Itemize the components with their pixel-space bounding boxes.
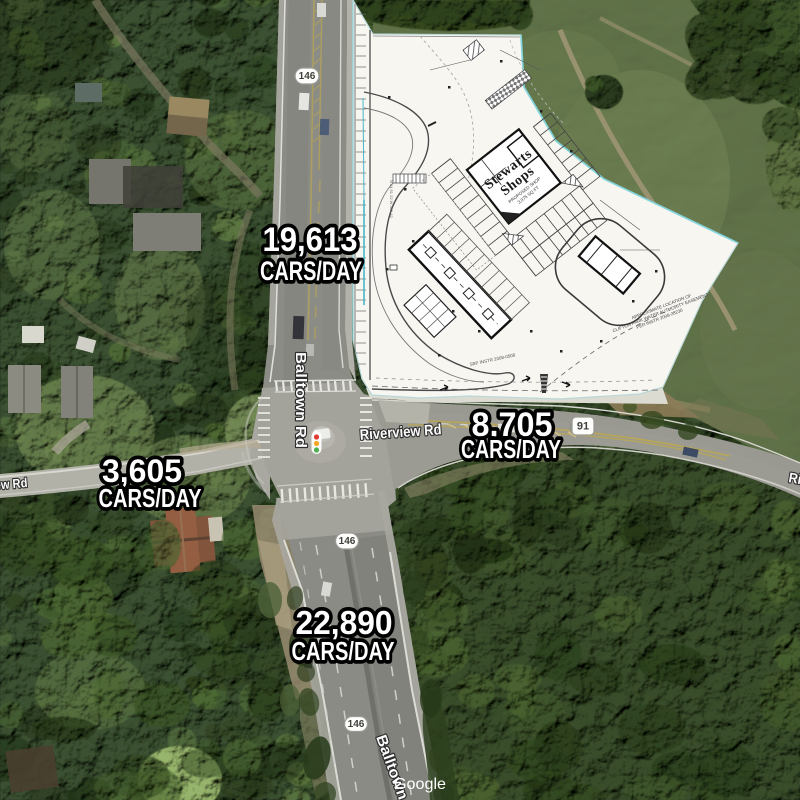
svg-text:Balltown Rd: Balltown Rd bbox=[292, 352, 309, 448]
svg-text:CARS/DAY: CARS/DAY bbox=[260, 256, 362, 286]
svg-text:CARS/DAY: CARS/DAY bbox=[292, 636, 395, 666]
svg-text:146: 146 bbox=[348, 719, 365, 730]
svg-text:Google: Google bbox=[394, 776, 446, 793]
svg-text:CARS/DAY: CARS/DAY bbox=[99, 483, 202, 513]
svg-text:CARS/DAY: CARS/DAY bbox=[461, 434, 561, 464]
svg-text:146: 146 bbox=[299, 71, 316, 82]
svg-text:19,613: 19,613 bbox=[263, 221, 358, 259]
svg-text:146: 146 bbox=[339, 536, 356, 547]
svg-text:91: 91 bbox=[577, 421, 589, 433]
svg-text:N 24 51 22 W 385.42: N 24 51 22 W 385.42 bbox=[389, 180, 394, 219]
